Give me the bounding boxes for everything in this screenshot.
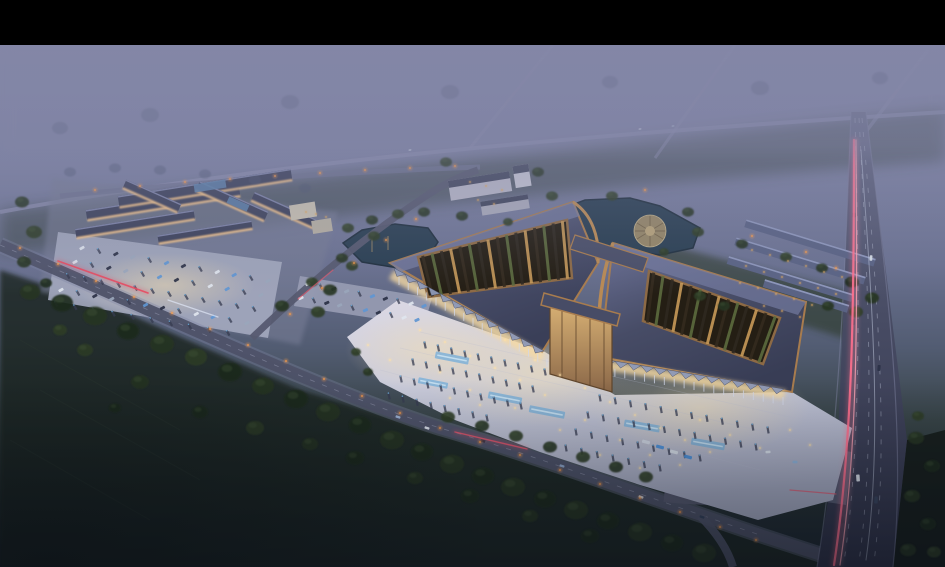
- parking-stall-light: [504, 359, 506, 361]
- parking-stall-light: [530, 365, 532, 367]
- window-light: [781, 310, 782, 311]
- car: [877, 365, 880, 371]
- window-light: [799, 316, 800, 317]
- window-light: [811, 304, 812, 305]
- fog-top-band: [0, 45, 945, 155]
- tree-highlight: [720, 302, 725, 306]
- aerial-rendering: [0, 0, 945, 567]
- tree-highlight: [824, 302, 829, 306]
- plaza-light: [559, 374, 561, 376]
- letterbox-top: [0, 0, 945, 45]
- window-light: [793, 298, 794, 299]
- parking-stall-light: [396, 298, 398, 300]
- corner-vignette: [0, 300, 500, 567]
- window-light: [763, 305, 764, 306]
- plaza-light: [504, 339, 506, 341]
- parking-stall-light: [517, 362, 519, 364]
- parking-stall-light: [312, 297, 314, 299]
- street-light: [133, 296, 135, 298]
- parking-stall-light: [201, 297, 203, 299]
- plaza-light: [534, 359, 536, 361]
- scene-canvas: [0, 0, 945, 567]
- parking-stall-light: [544, 368, 546, 370]
